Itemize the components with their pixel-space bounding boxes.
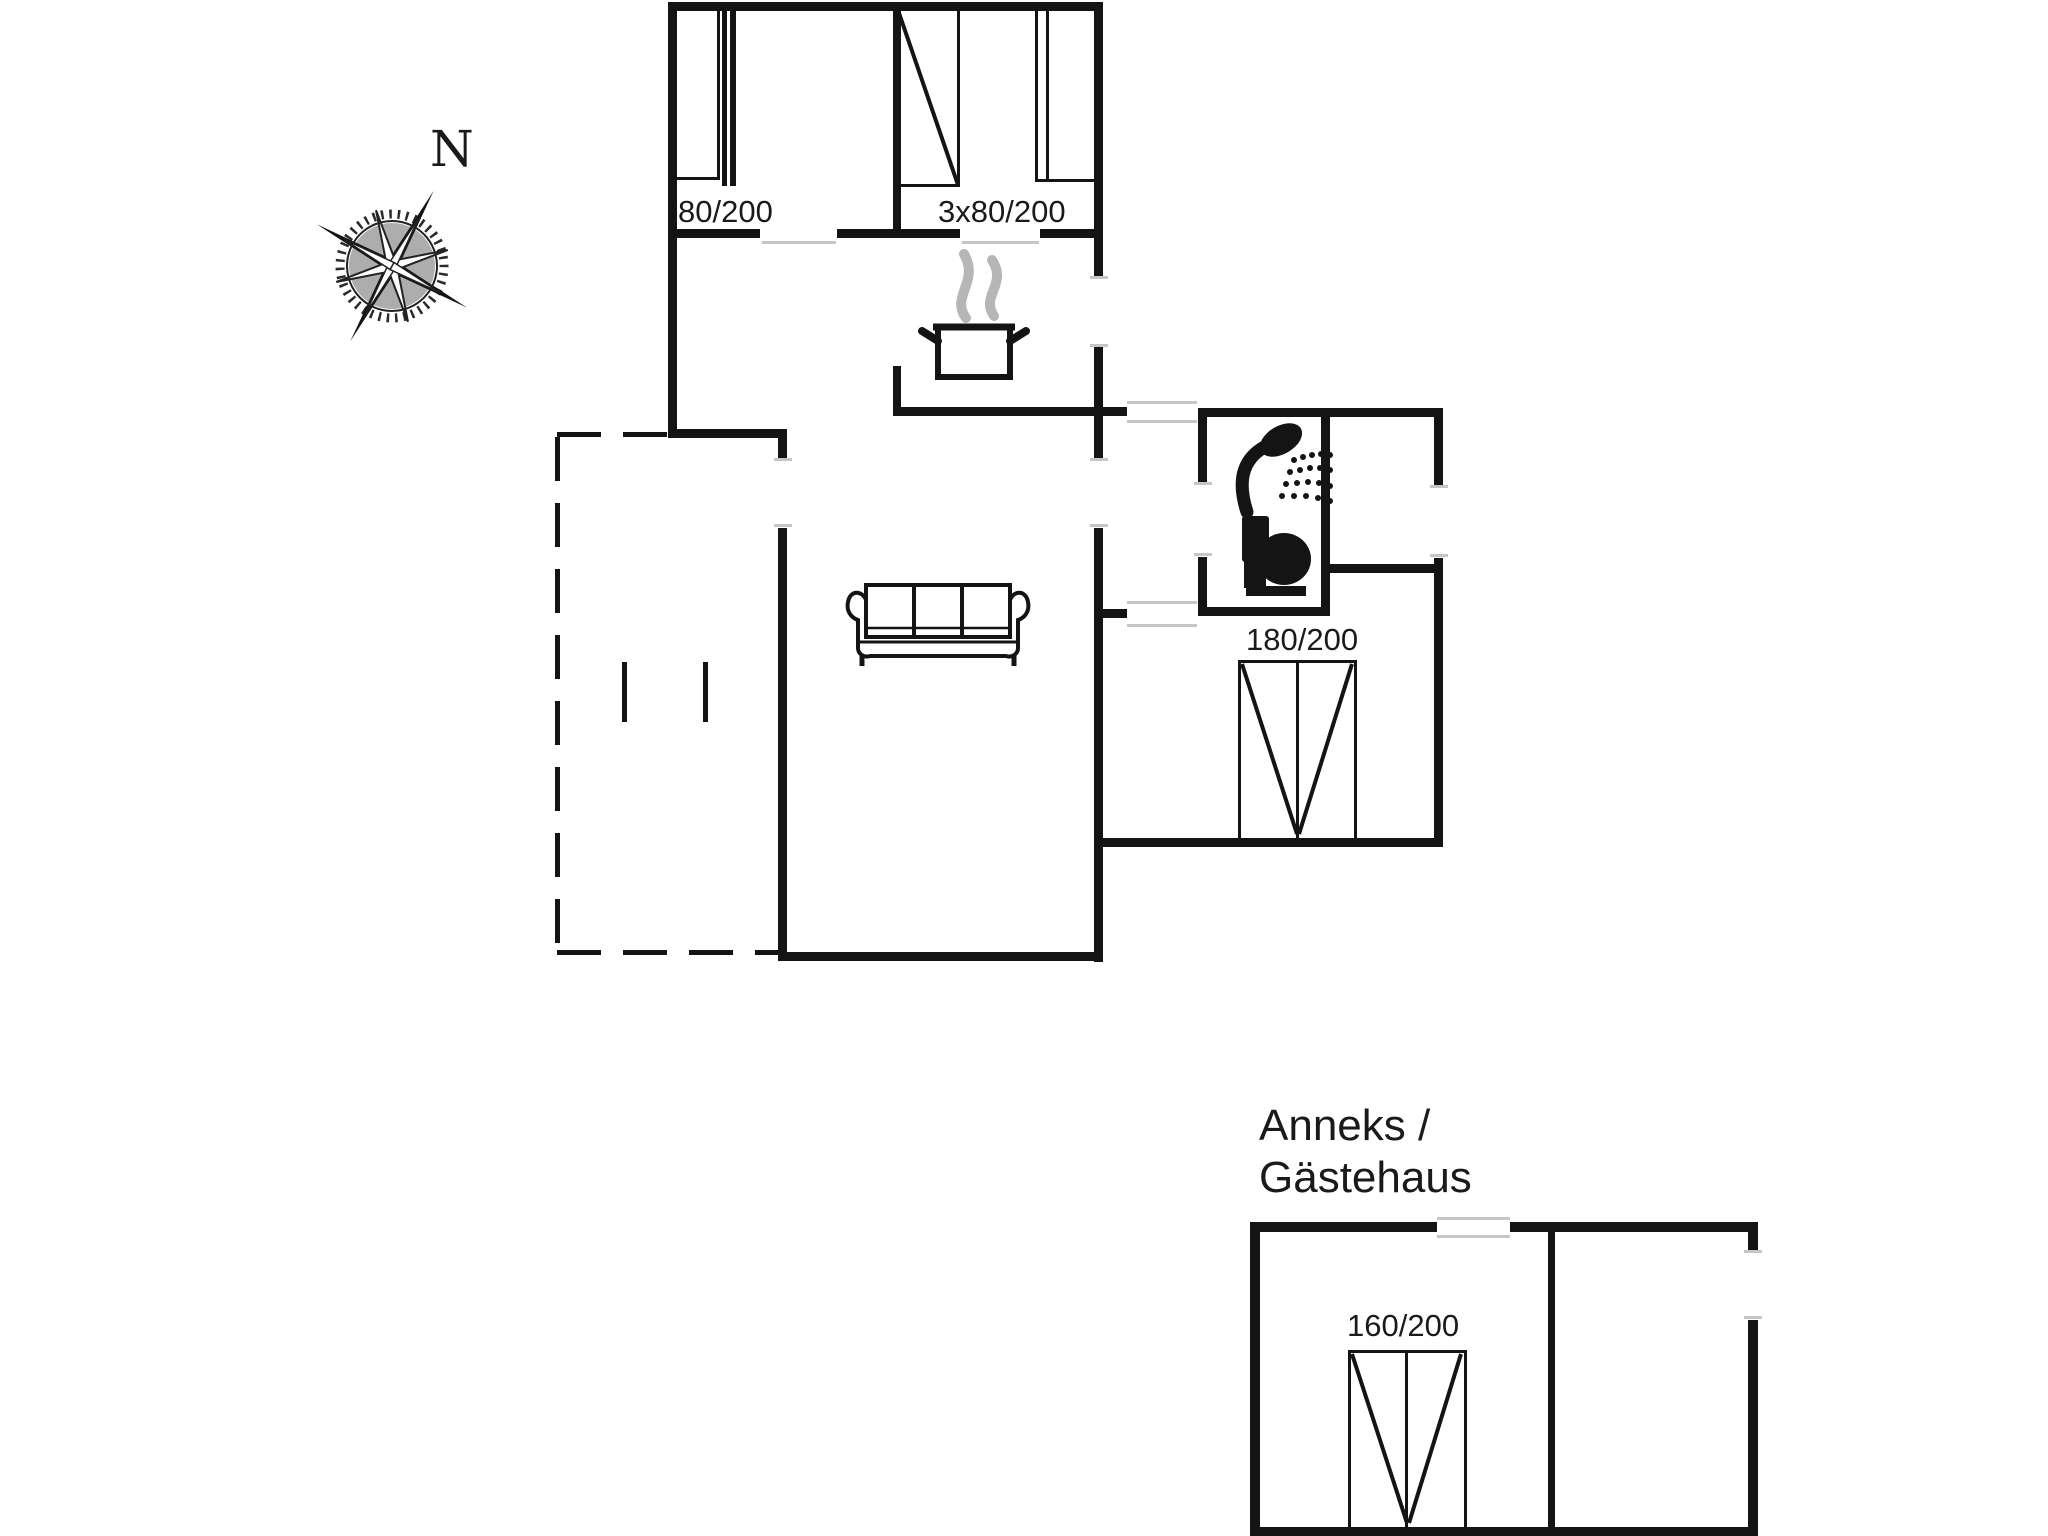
floor-plan: N 80/200 3x80/200 180/200 160/200 Anneks… (0, 0, 2048, 1536)
cooking-pot-steam-icon (922, 254, 1026, 377)
shower-spray-dots (1279, 451, 1333, 504)
window-swing-3x80 (899, 13, 958, 185)
compass-rose-icon (275, 149, 509, 383)
plan-vector-overlay (0, 0, 2048, 1536)
toilet-icon (1242, 516, 1311, 596)
window-swing-160 (1352, 1354, 1461, 1523)
window-swing-180 (1242, 664, 1352, 834)
shower-icon (1242, 416, 1333, 512)
sofa-icon (848, 585, 1029, 666)
